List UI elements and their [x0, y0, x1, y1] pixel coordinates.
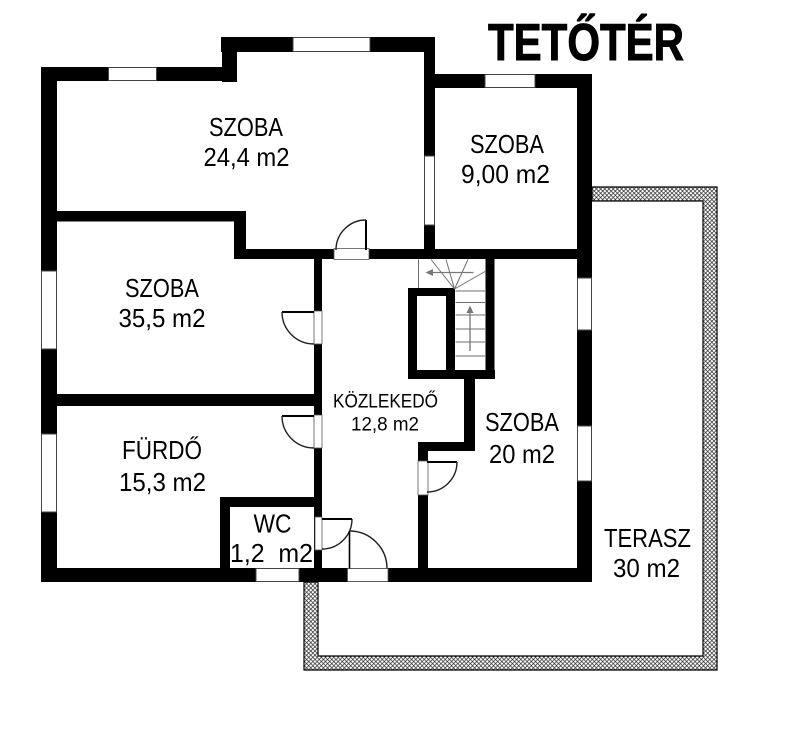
svg-text:SZOBA: SZOBA [209, 112, 284, 142]
svg-text:SZOBA: SZOBA [485, 407, 560, 437]
svg-text:WC: WC [254, 509, 292, 539]
svg-text:35,5 m2: 35,5 m2 [119, 303, 206, 333]
svg-text:12,8 m2: 12,8 m2 [351, 415, 419, 436]
svg-text:30 m2: 30 m2 [613, 553, 680, 583]
svg-text:15,3 m2: 15,3 m2 [119, 467, 206, 497]
svg-text:TERASZ: TERASZ [604, 523, 691, 553]
svg-text:TETŐTÉR: TETŐTÉR [488, 13, 684, 72]
svg-text:9,00 m2: 9,00 m2 [461, 159, 550, 189]
svg-text:KÖZLEKEDŐ: KÖZLEKEDŐ [333, 391, 438, 413]
svg-text:FÜRDŐ: FÜRDŐ [122, 435, 202, 465]
svg-text:20 m2: 20 m2 [489, 439, 555, 469]
svg-text:SZOBA: SZOBA [125, 273, 200, 303]
svg-text:1,2 m2: 1,2 m2 [230, 538, 313, 568]
svg-text:SZOBA: SZOBA [470, 129, 545, 159]
svg-text:24,4 m2: 24,4 m2 [204, 142, 290, 172]
